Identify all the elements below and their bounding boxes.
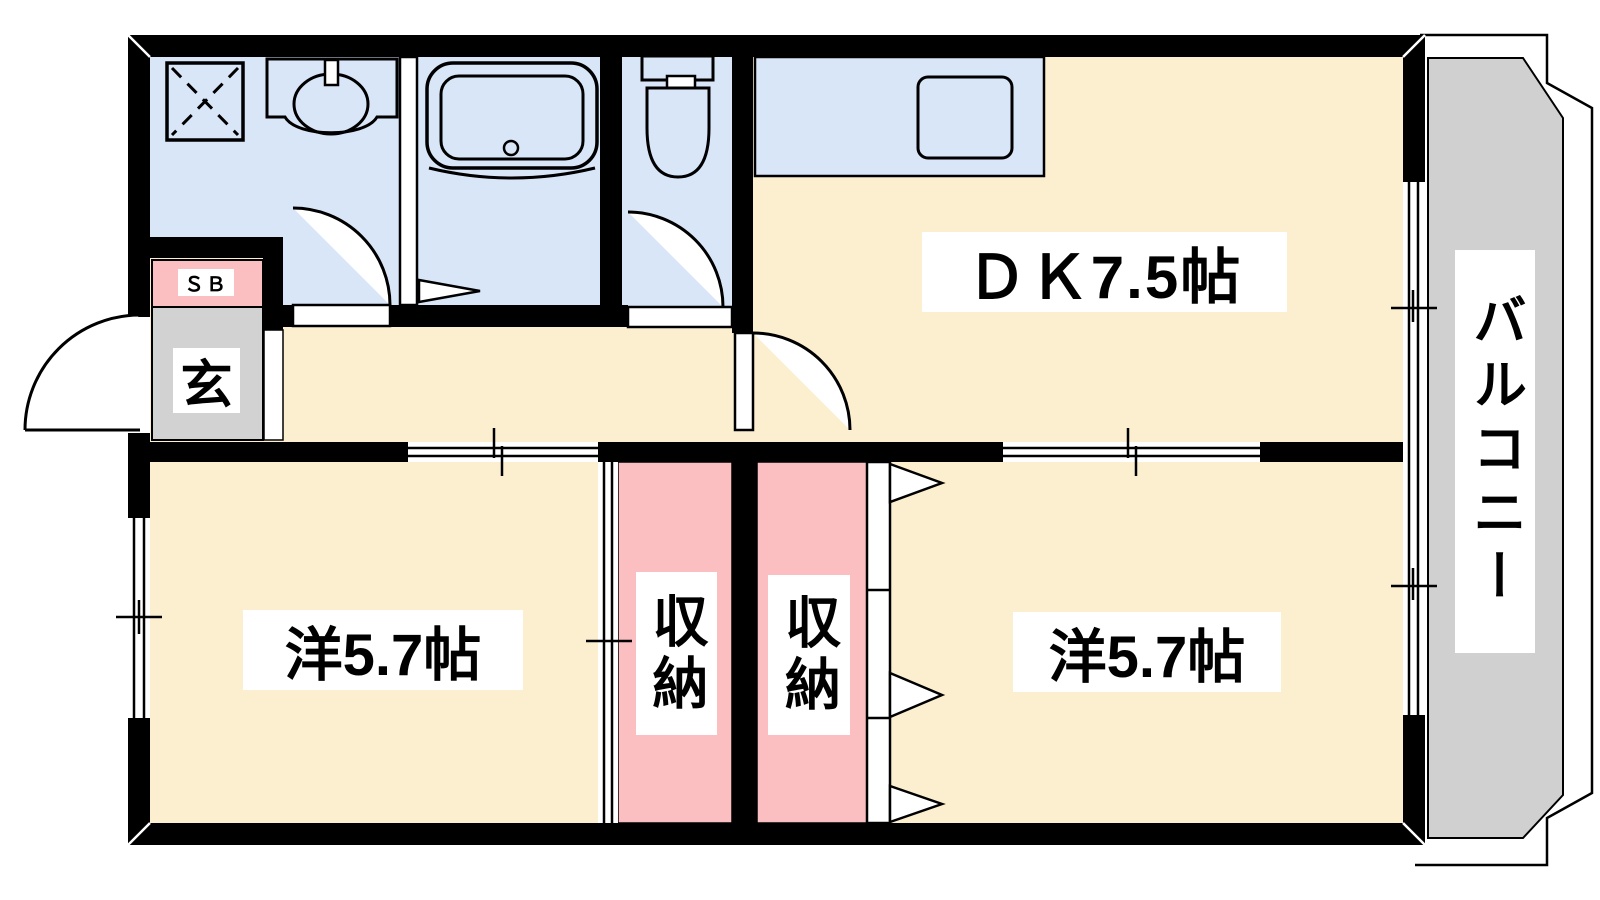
wall-right-upper xyxy=(1403,57,1425,182)
balcony-label: バルコニー xyxy=(1455,250,1535,653)
dk-room-label: ＤＫ7.5帖 xyxy=(922,232,1287,312)
floorplan-drawing xyxy=(0,0,1600,900)
toilet-lid-detail xyxy=(667,76,695,88)
bedroom-right-label: 洋5.7帖 xyxy=(1013,612,1281,692)
wall-bottom xyxy=(128,823,1425,845)
dk-door-leaf xyxy=(735,333,753,430)
entrance-step xyxy=(264,330,283,440)
wall-left-lower xyxy=(128,718,150,823)
shoebox-label: ＳＢ xyxy=(178,269,234,296)
closet-right-label: 収納 xyxy=(768,575,850,735)
bath-partition-wall xyxy=(400,57,417,305)
closet-left-sliding-door xyxy=(598,462,618,823)
floor-plan: ＤＫ7.5帖 洋5.7帖 洋5.7帖 収納 収納 玄 ＳＢ バルコニー xyxy=(0,0,1600,900)
wall-closet-center xyxy=(732,462,757,823)
balcony-window xyxy=(1403,182,1425,715)
wall-toilet-right xyxy=(732,57,753,333)
wall-bath-toilet xyxy=(600,57,622,327)
bathroom-floor xyxy=(417,57,600,305)
washroom-door-leaf xyxy=(293,305,390,326)
entrance-label: 玄 xyxy=(173,348,240,413)
entrance-door-swing xyxy=(25,315,140,430)
closet-left-label: 収納 xyxy=(636,572,717,735)
bedroom-right-sliding-door xyxy=(1003,442,1260,462)
wall-right-lower xyxy=(1403,715,1425,823)
washbasin-faucet xyxy=(325,60,338,85)
wall-entrance-stub xyxy=(263,258,283,330)
wall-top xyxy=(128,35,1425,57)
bedroom-left-label: 洋5.7帖 xyxy=(243,610,523,690)
entrance-opening xyxy=(128,317,150,433)
wall-above-shoebox xyxy=(128,237,283,258)
wall-left-upper xyxy=(128,57,150,317)
toilet-door-leaf xyxy=(628,307,732,327)
